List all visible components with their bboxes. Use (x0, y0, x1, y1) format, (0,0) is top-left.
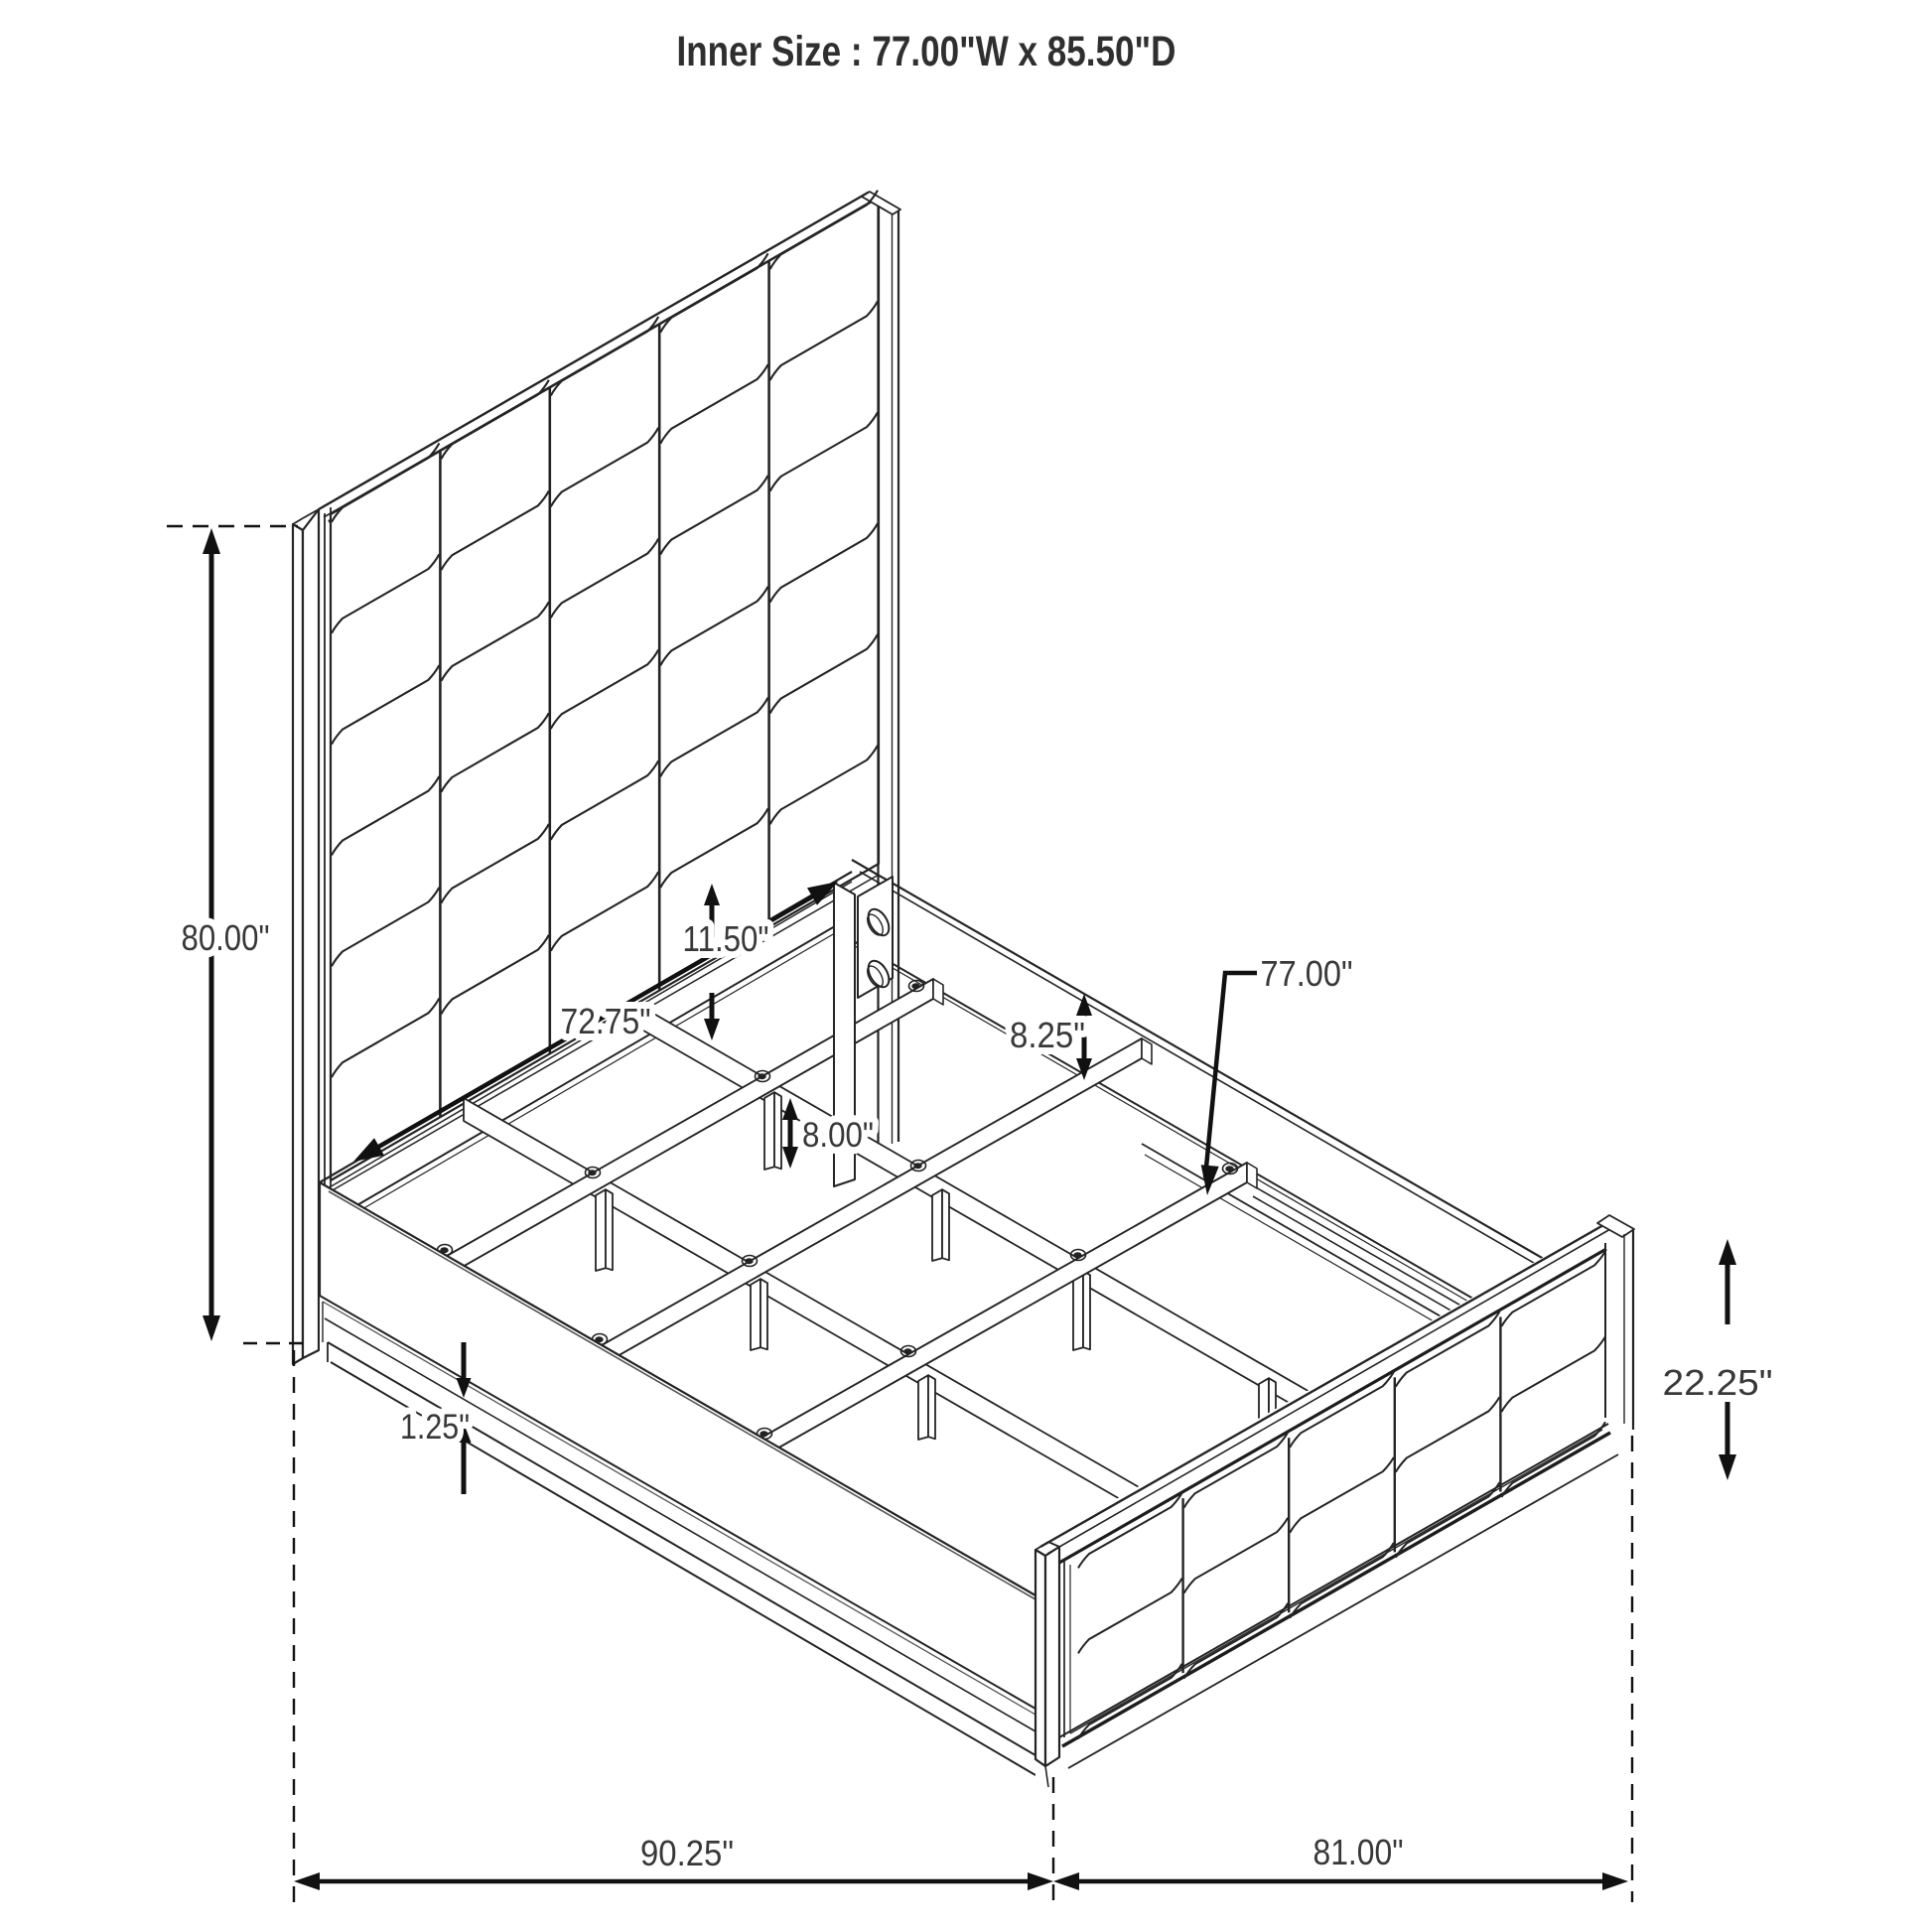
svg-text:8.00": 8.00" (802, 1116, 874, 1155)
svg-text:90.25": 90.25" (640, 1833, 734, 1873)
svg-text:11.50": 11.50" (683, 918, 769, 959)
svg-text:Inner Size : 77.00"W x 85.50"D: Inner Size : 77.00"W x 85.50"D (677, 28, 1176, 75)
svg-text:8.25": 8.25" (1010, 1015, 1085, 1055)
svg-text:72.75": 72.75" (561, 1001, 651, 1041)
svg-text:1.25": 1.25" (400, 1408, 470, 1447)
svg-text:81.00": 81.00" (1313, 1832, 1404, 1872)
svg-text:80.00": 80.00" (182, 917, 270, 958)
svg-text:77.00": 77.00" (1261, 953, 1353, 994)
svg-text:22.25": 22.25" (1663, 1362, 1773, 1403)
